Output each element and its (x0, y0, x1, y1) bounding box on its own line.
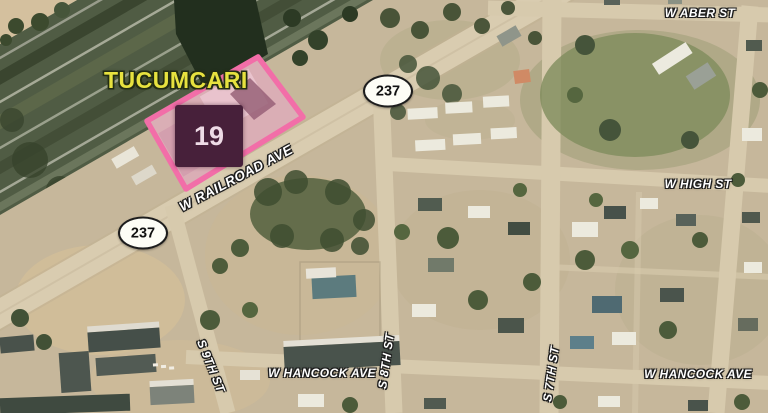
street-label-w-aber-st: W ABER ST (665, 6, 736, 20)
street-label-w-high-st: W HIGH ST (665, 177, 732, 191)
street-label-w-hancock-ave-left: W HANCOCK AVE (268, 366, 376, 380)
route-shield-number: 237 (376, 83, 400, 99)
route-shield-237-southwest: 237 (118, 217, 168, 250)
parcel-19-marker[interactable]: 19 (175, 105, 243, 167)
satellite-map[interactable]: 19 TUCUMCARI W RAILROAD AVE W ABER ST W … (0, 0, 768, 413)
street-label-w-hancock-ave-right: W HANCOCK AVE (644, 367, 752, 381)
route-shield-237-northeast: 237 (363, 75, 413, 108)
city-label: TUCUMCARI (104, 67, 248, 94)
route-shield-number: 237 (131, 225, 155, 241)
